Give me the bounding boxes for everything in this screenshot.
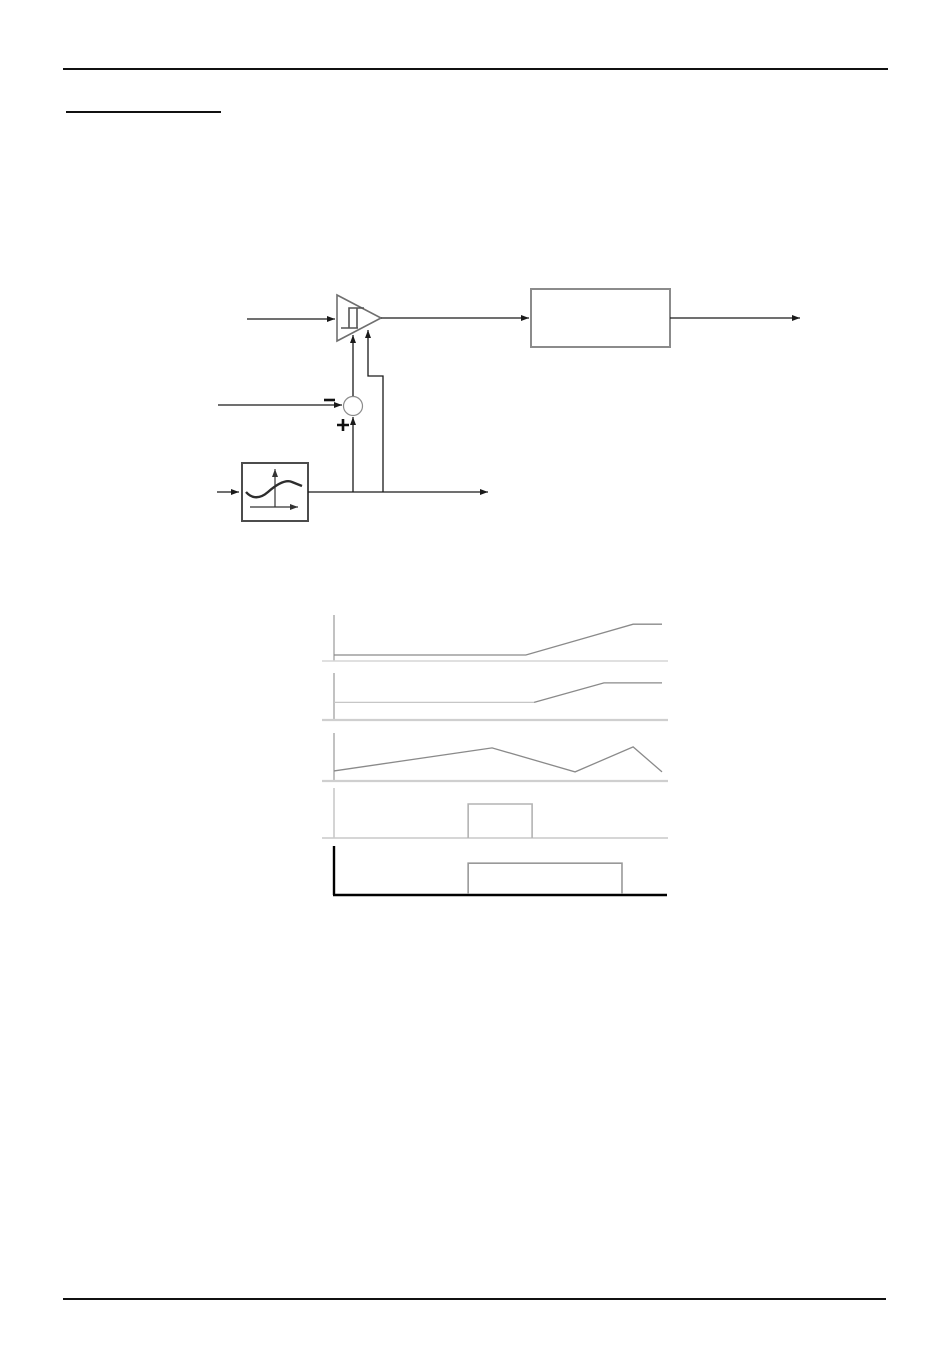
hysteresis-icon	[341, 308, 364, 328]
waveform-trace	[334, 624, 662, 655]
shaper-input-line-arrowhead	[231, 489, 239, 495]
waveform-plot-4	[318, 782, 676, 846]
waveform-trace	[334, 747, 662, 772]
waveform-plot-3	[318, 727, 676, 789]
plus-sign	[337, 419, 349, 431]
waveform-plot-5	[329, 840, 675, 903]
feedback-to-comparator-line-arrowhead	[365, 330, 371, 338]
waveform-plot-2	[318, 667, 676, 728]
bottom-rule	[63, 1298, 886, 1300]
waveform-plot-1	[318, 609, 676, 669]
waveform-trace-ramp	[534, 683, 662, 703]
heading-underline	[66, 111, 221, 113]
waveform-pulse	[468, 863, 622, 894]
summing-input-line-arrowhead	[334, 402, 342, 408]
sum-to-comparator-line-arrowhead	[350, 335, 356, 343]
document-page	[0, 0, 950, 1370]
comparator-output-line-arrowhead	[521, 315, 529, 321]
output-block	[531, 289, 670, 347]
feedback-to-comparator-line	[368, 330, 383, 492]
block-diagram	[200, 280, 820, 535]
waveform-pulse	[468, 804, 532, 838]
summing-junction	[344, 397, 363, 416]
final-output-line-arrowhead	[792, 315, 800, 321]
feedback-to-sum-line-arrowhead	[350, 417, 356, 425]
top-rule	[63, 68, 888, 70]
comparator-input-line-arrowhead	[327, 316, 335, 322]
comparator-triangle	[337, 295, 381, 341]
shaper-output-line-arrowhead	[480, 489, 488, 495]
